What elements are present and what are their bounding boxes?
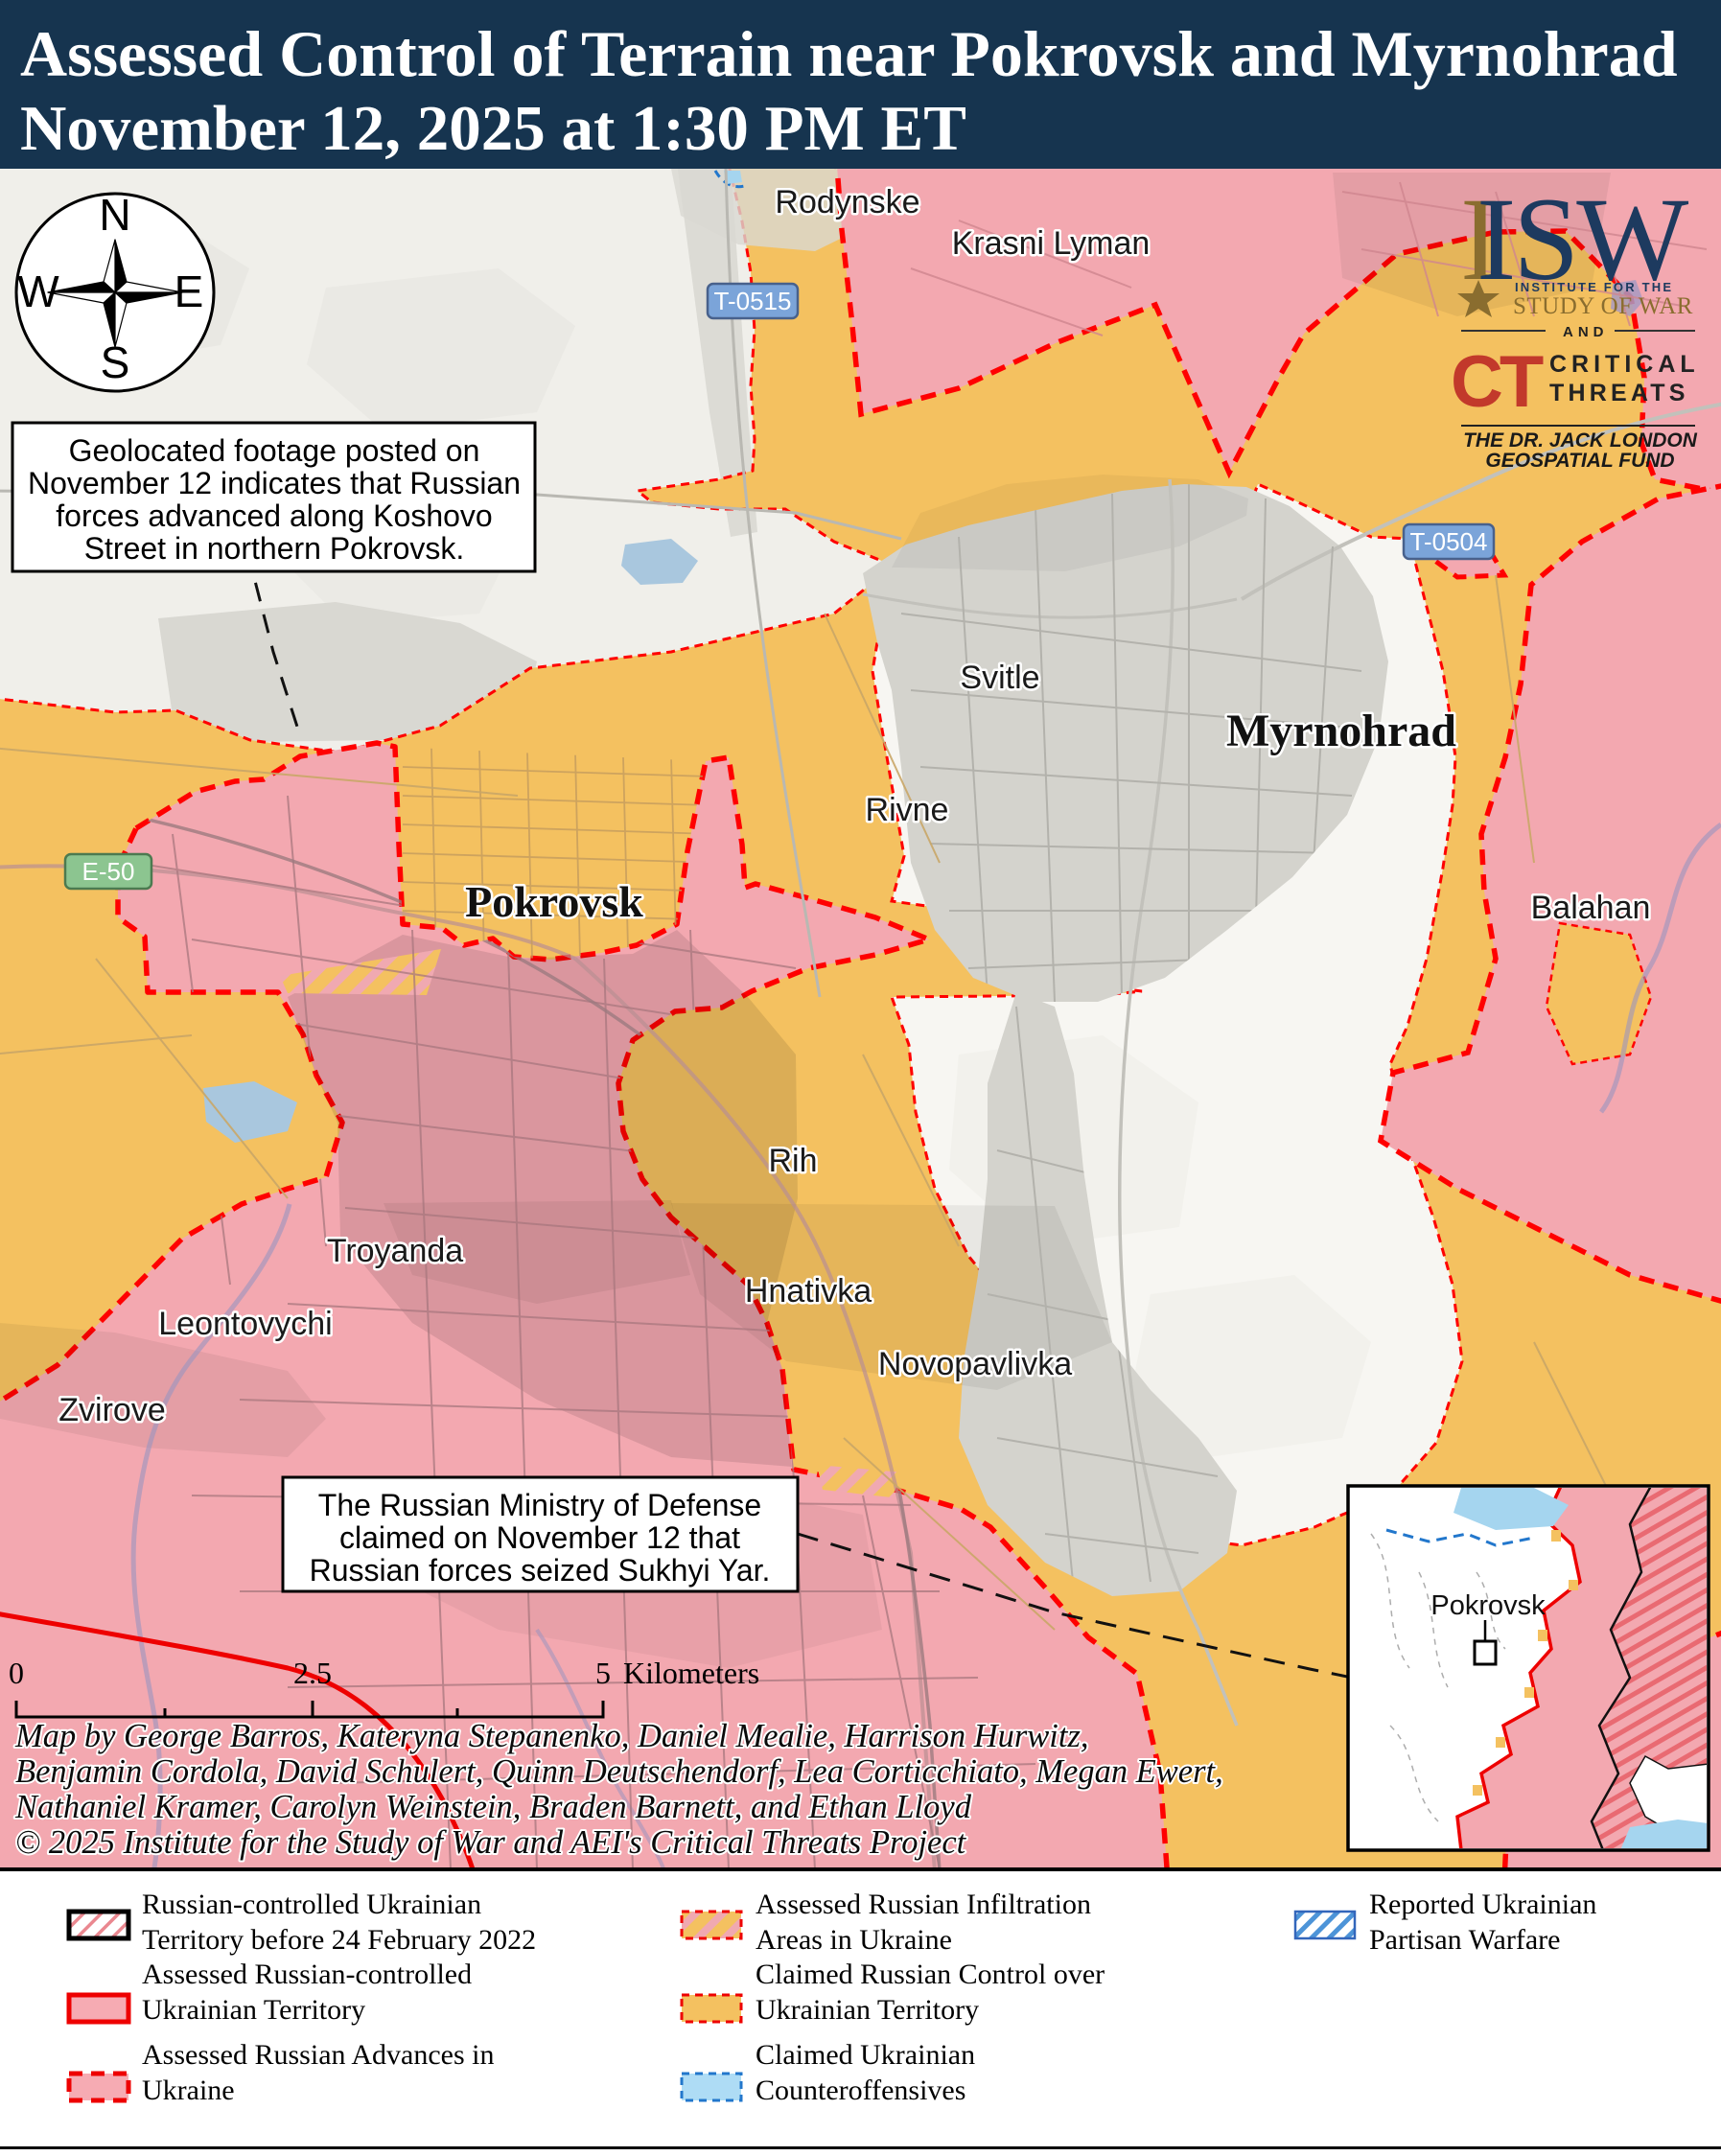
svg-text:AND: AND xyxy=(1563,324,1609,340)
svg-text:2.5: 2.5 xyxy=(293,1656,332,1690)
svg-text:forces advanced along Koshovo: forces advanced along Koshovo xyxy=(56,498,492,533)
svg-text:T-0504: T-0504 xyxy=(1410,527,1488,556)
svg-text:Benjamin Cordola, David Schule: Benjamin Cordola, David Schulert, Quinn … xyxy=(15,1753,1223,1790)
svg-text:STUDY OF WAR: STUDY OF WAR xyxy=(1513,293,1693,319)
svg-text:5: 5 xyxy=(595,1656,611,1690)
svg-text:Svitle: Svitle xyxy=(960,660,1039,696)
svg-text:E: E xyxy=(174,267,204,316)
svg-text:Map by George Barros, Kateryna: Map by George Barros, Kateryna Stepanenk… xyxy=(14,1718,1089,1754)
svg-text:Pokrovsk: Pokrovsk xyxy=(1430,1590,1546,1621)
svg-text:E-50: E-50 xyxy=(82,857,135,886)
svg-text:GEOSPATIAL FUND: GEOSPATIAL FUND xyxy=(1485,450,1674,472)
svg-text:Rodynske: Rodynske xyxy=(775,184,919,220)
svg-text:Balahan: Balahan xyxy=(1531,890,1651,926)
svg-text:Geolocated footage posted on: Geolocated footage posted on xyxy=(69,433,480,468)
svg-text:The Russian Ministry of Defens: The Russian Ministry of Defense xyxy=(318,1488,761,1522)
svg-text:0: 0 xyxy=(9,1656,24,1690)
svg-text:Kilometers: Kilometers xyxy=(623,1656,759,1690)
svg-text:Street in northern Pokrovsk.: Street in northern Pokrovsk. xyxy=(84,531,465,566)
svg-text:N: N xyxy=(99,190,130,240)
svg-text:T-0515: T-0515 xyxy=(714,287,792,315)
svg-text:Leontovychi: Leontovychi xyxy=(158,1306,332,1342)
svg-text:INSTITUTE FOR THE: INSTITUTE FOR THE xyxy=(1515,280,1673,294)
svg-text:W: W xyxy=(17,267,59,316)
svg-text:Myrnohrad: Myrnohrad xyxy=(1226,706,1456,756)
svg-text:CRITICAL: CRITICAL xyxy=(1549,351,1700,378)
svg-text:THE DR. JACK LONDON: THE DR. JACK LONDON xyxy=(1463,429,1698,452)
svg-text:Zvirove: Zvirove xyxy=(58,1392,165,1428)
svg-text:Nathaniel Kramer, Carolyn Wein: Nathaniel Kramer, Carolyn Weinstein, Bra… xyxy=(14,1789,972,1825)
svg-text:Troyanda: Troyanda xyxy=(327,1233,463,1269)
svg-text:Russian forces seized Sukhyi Y: Russian forces seized Sukhyi Yar. xyxy=(310,1553,771,1588)
svg-text:Krasni Lyman: Krasni Lyman xyxy=(952,225,1151,262)
svg-text:CT: CT xyxy=(1451,341,1544,423)
svg-text:Hnativka: Hnativka xyxy=(745,1273,872,1310)
svg-text:claimed on November 12 that: claimed on November 12 that xyxy=(339,1520,740,1555)
svg-text:Rih: Rih xyxy=(768,1143,817,1179)
svg-text:November 12 indicates that Rus: November 12 indicates that Russian xyxy=(28,466,521,500)
svg-text:THREATS: THREATS xyxy=(1549,380,1689,406)
svg-text:© 2025 Institute for the Study: © 2025 Institute for the Study of War an… xyxy=(15,1824,967,1861)
svg-text:Novopavlivka: Novopavlivka xyxy=(878,1346,1072,1382)
svg-text:Pokrovsk: Pokrovsk xyxy=(465,877,643,926)
svg-text:Rivne: Rivne xyxy=(866,792,949,828)
svg-text:S: S xyxy=(101,337,130,387)
